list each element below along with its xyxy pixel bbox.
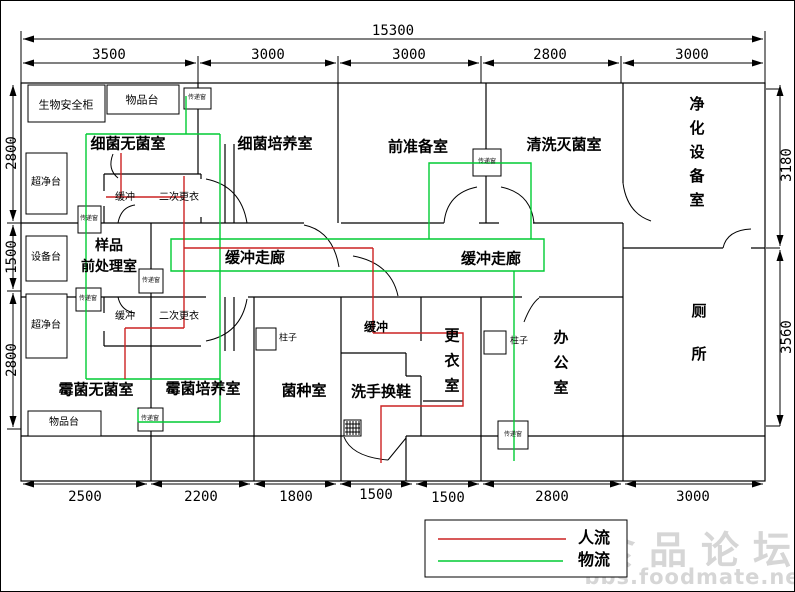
dim-right-1: 3560 <box>780 320 794 354</box>
pass-window-label-5: 传递窗 <box>142 278 160 284</box>
room-label-bacteria-sterile: 细菌无菌室 <box>90 137 165 152</box>
pass-window-label-6: 传递窗 <box>141 416 159 422</box>
dim-left-1: 1500 <box>5 240 19 274</box>
dim-left-2: 2800 <box>5 343 19 377</box>
dim-bottom-5: 2800 <box>535 490 569 504</box>
room-label-strain: 菌种室 <box>281 384 326 399</box>
pass-window-label-4: 传递窗 <box>79 296 97 302</box>
dim-top-0: 3500 <box>92 48 126 62</box>
room-label-toilet: 厕所 <box>691 303 706 389</box>
legend-material-label: 物流 <box>578 552 610 568</box>
dim-bottom-6: 3000 <box>676 490 710 504</box>
hatch-floor-drain <box>344 420 361 436</box>
bench-label-items-table-top: 物品台 <box>126 95 159 106</box>
room-label-sample-pretreat-line2: 前处理室 <box>81 260 137 274</box>
room-label-wash-shoes: 洗手换鞋 <box>351 385 411 400</box>
room-label-corridor-2: 缓冲走廊 <box>461 252 521 267</box>
room-label-pre-prep: 前准备室 <box>388 140 448 155</box>
dim-top-2: 3000 <box>392 48 426 62</box>
floor-plan: 食品论坛 bbs.foodmate.net <box>0 0 795 592</box>
dim-bottom-4: 1500 <box>431 491 465 505</box>
bench-label-clean-bench-lower: 超净台 <box>31 321 61 331</box>
label-buffer-mid: 缓冲 <box>115 312 135 322</box>
label-buffer-center: 缓冲 <box>364 321 388 333</box>
label-second-change-top: 二次更衣 <box>159 193 199 203</box>
dim-bottom-2: 1800 <box>279 490 313 504</box>
dim-left-0: 2800 <box>5 136 19 170</box>
room-label-changing: 更衣室 <box>444 328 459 403</box>
room-label-sample-pretreat-line1: 样品 <box>95 239 123 253</box>
label-second-change-mid: 二次更衣 <box>159 312 199 322</box>
room-label-mold-culture: 霉菌培养室 <box>165 382 240 397</box>
dim-bottom-3: 1500 <box>359 488 393 502</box>
dim-top-1: 3000 <box>251 48 285 62</box>
pass-window-label-3: 传递窗 <box>80 216 98 222</box>
label-buffer-top: 缓冲 <box>115 193 135 203</box>
pass-window-label-2: 传递窗 <box>478 159 496 165</box>
room-label-office: 办公室 <box>553 330 568 405</box>
bench-label-equip-table: 设备台 <box>31 253 61 263</box>
legend-people-label: 人流 <box>578 530 610 546</box>
room-label-mold-sterile: 霉菌无菌室 <box>58 383 133 398</box>
pass-window-label-1: 传递窗 <box>188 95 206 101</box>
pass-window-label-7: 传递窗 <box>504 432 522 438</box>
door-arcs <box>111 154 751 460</box>
bench-label-clean-bench-upper: 超净台 <box>31 178 61 188</box>
room-label-corridor-1: 缓冲走廊 <box>225 251 285 266</box>
room-label-wash-sterilize: 清洗灭菌室 <box>526 138 601 153</box>
dim-top-4: 3000 <box>675 48 709 62</box>
bench-label-items-table-bottom: 物品台 <box>49 418 79 428</box>
bench-label-bio-cabinet: 生物安全柜 <box>39 100 94 111</box>
dim-right-0: 3180 <box>780 148 794 182</box>
dim-total: 15300 <box>372 24 414 38</box>
dim-bottom-0: 2500 <box>68 490 102 504</box>
dim-bottom-1: 2200 <box>184 490 218 504</box>
pillar-label-2: 柱子 <box>510 338 528 347</box>
room-label-bacteria-culture: 细菌培养室 <box>237 137 312 152</box>
pillar-label-1: 柱子 <box>279 335 297 344</box>
dim-top-3: 2800 <box>533 48 567 62</box>
room-label-purification: 净化设备室 <box>689 96 704 216</box>
